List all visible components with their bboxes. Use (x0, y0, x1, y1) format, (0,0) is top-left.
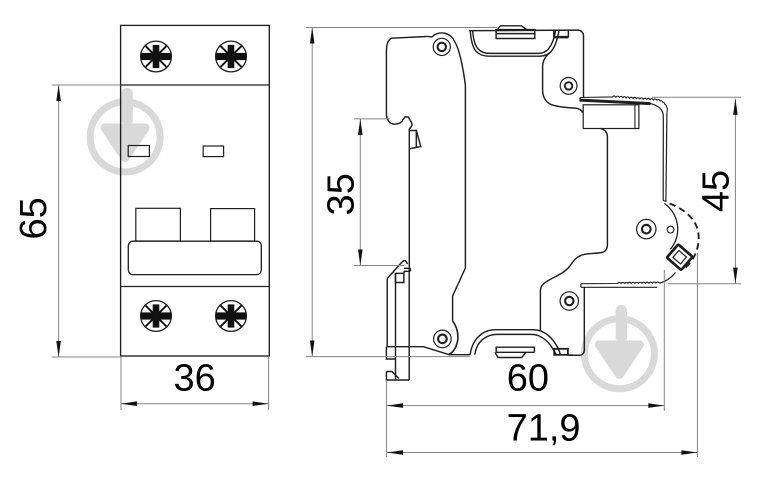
svg-text:65: 65 (13, 197, 55, 239)
svg-text:71,9: 71,9 (507, 408, 581, 450)
svg-text:36: 36 (174, 357, 216, 399)
svg-text:35: 35 (321, 173, 363, 215)
svg-text:60: 60 (507, 358, 549, 400)
svg-text:45: 45 (696, 170, 738, 212)
